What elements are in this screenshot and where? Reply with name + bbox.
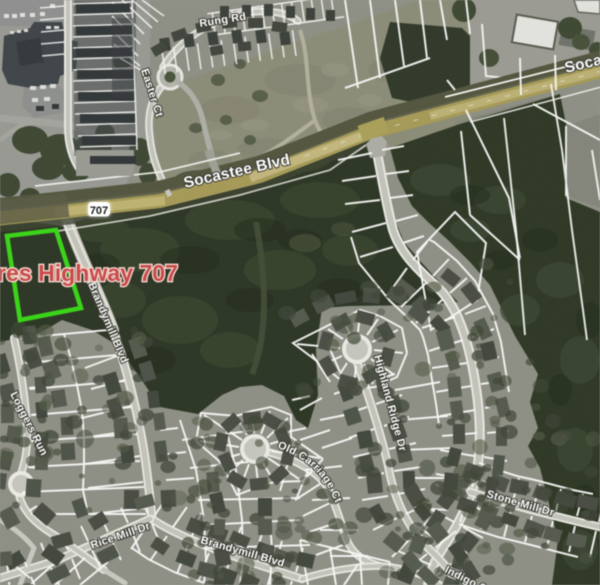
svg-text:res Highway 707: res Highway 707 (0, 260, 178, 286)
svg-text:707: 707 (90, 205, 108, 217)
